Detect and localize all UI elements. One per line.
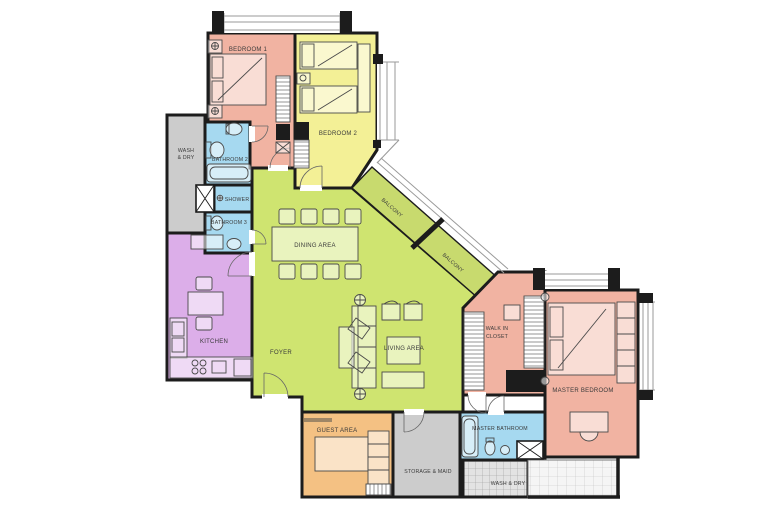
room-wash-dry-right	[463, 460, 528, 497]
label-living: LIVING AREA	[384, 346, 424, 352]
label-master-bedroom: MASTER BEDROOM	[552, 388, 613, 394]
shower-fixtures	[217, 195, 223, 201]
label-wash-dry-left-2: & DRY	[178, 155, 195, 161]
label-foyer: FOYER	[270, 350, 292, 356]
label-master-bathroom: MASTER BATHROOM	[472, 426, 528, 432]
label-bedroom1: BEDROOM 1	[229, 47, 268, 53]
label-bathroom3: BATHROOM 3	[211, 220, 247, 226]
floor-plan: BEDROOM 1 BEDROOM 2 WASH & DRY BATHROOM …	[0, 0, 768, 512]
bay-window-master-right	[637, 293, 655, 400]
room-storage-maid	[393, 412, 460, 497]
label-shower: SHOWER	[225, 197, 250, 203]
closet-vanity-block	[506, 370, 545, 392]
label-wic-2: CLOSET	[486, 334, 509, 340]
label-wic-1: WALK IN	[486, 326, 509, 332]
room-wash-dry-left	[167, 115, 205, 233]
label-bedroom2: BEDROOM 2	[319, 131, 358, 137]
label-wash-dry-right: WASH & DRY	[491, 481, 526, 487]
terrace-grille	[528, 460, 618, 497]
bay-window-top	[212, 11, 352, 33]
label-bathroom2: BATHROOM 2	[212, 157, 248, 163]
floor-plan-svg: BEDROOM 1 BEDROOM 2 WASH & DRY BATHROOM …	[0, 0, 768, 512]
label-wash-dry-left-1: WASH	[178, 148, 194, 154]
bay-window-master-top	[533, 268, 620, 290]
wardrobe-block-1	[276, 124, 290, 140]
label-dining: DINING AREA	[294, 243, 335, 249]
label-storage: STORAGE & MAID	[404, 469, 451, 475]
label-kitchen: KITCHEN	[200, 339, 228, 345]
wardrobe-block-2	[294, 122, 309, 140]
label-guest: GUEST AREA	[317, 428, 358, 434]
